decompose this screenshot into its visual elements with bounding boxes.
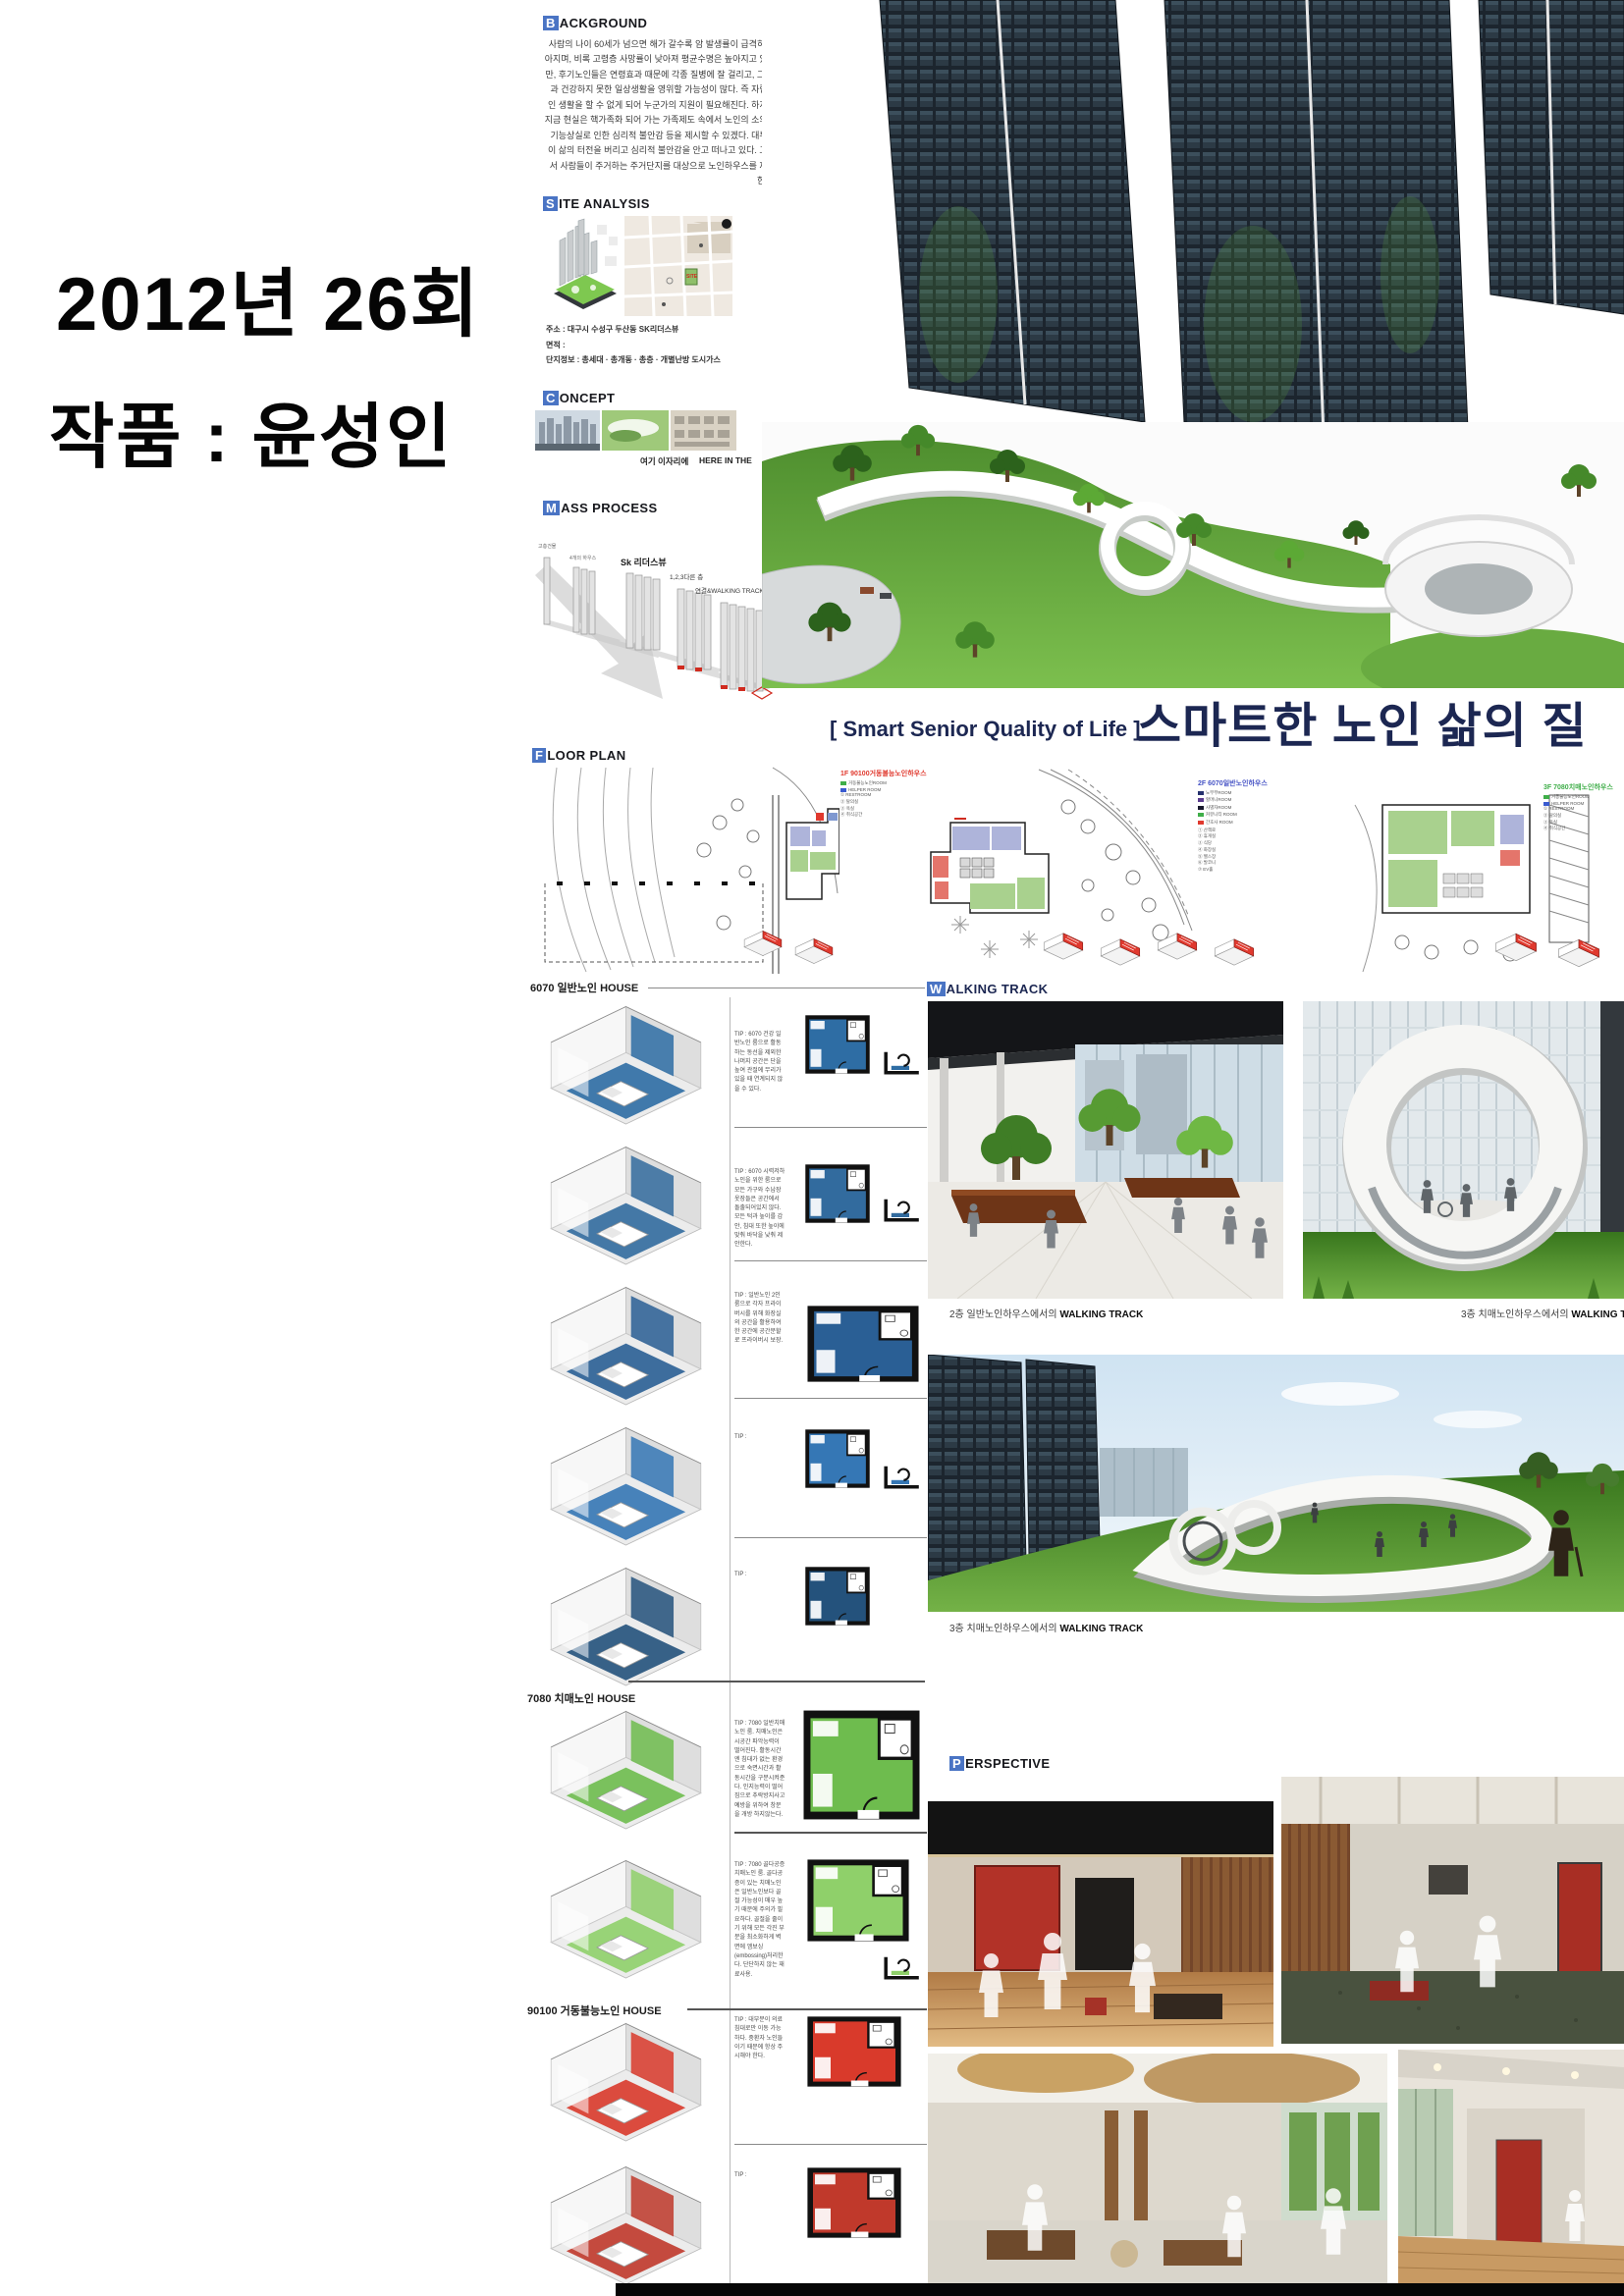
unit-section-icon [882, 1953, 923, 1983]
unit-thumbnails-3 [1492, 925, 1620, 974]
site-complex-info: 단지정보 : 총세대 · 총개동 · 총층 · 개별난방 도시가스 [546, 354, 721, 365]
unit-tip: TIP : 6070 건강 일반노인 룸으로 활동하는 동선을 제외한 나머지 … [734, 1031, 785, 1095]
unit-tip: TIP : 일반노인 2인 룸으로 각자 프라이버시를 위해 화장실의 공간을 … [734, 1292, 785, 1347]
hero-render [762, 0, 1624, 688]
floor-plan-3f-legend: 3F 7080치매노인하우스 거동불능노인ROOM HELPER ROOM ① … [1543, 782, 1622, 832]
unit-axon-model [535, 1857, 717, 1985]
header-initial-box: B [543, 16, 559, 30]
floor-plan-1f-legend: 1F 90100거동불능노인하우스 거동불능노인ROOM HELPER ROOM… [840, 769, 921, 819]
svg-text:고층건물: 고층건물 [538, 543, 557, 550]
unit-axon-model [535, 1708, 717, 1836]
unit-group-header-7080: 7080 치매노인 HOUSE [527, 1690, 635, 1706]
caption-walking-2f: 2층 일반노인하우스에서의 WALKING TRACK [949, 1306, 1143, 1320]
svg-text:SITE: SITE [686, 274, 698, 280]
unit-axon-model [535, 2020, 717, 2148]
unit-plan-diagram [803, 1710, 920, 1820]
subtitle-english: [ Smart Senior Quality of Life ] [830, 717, 1141, 742]
svg-text:Sk 리더스뷰: Sk 리더스뷰 [621, 557, 667, 567]
exhibition-year-title: 2012년 26회 [56, 243, 481, 351]
unit-thumbnails-1 [741, 925, 839, 972]
section-header-walking-track: WALKING TRACK [927, 982, 1048, 996]
caption-walking-3f: 3층 치매노인하우스에서의 WALKING TRACK [949, 1620, 1143, 1634]
unit-axon-model [535, 1565, 717, 1692]
perspective-interior-reddoor-render [1281, 1777, 1624, 2044]
section-header-background: BACKGROUND [543, 16, 647, 30]
unit-plan-diagram [807, 2167, 901, 2238]
main-title-korean: 스마트한 노인 삶의 질 [1137, 687, 1588, 757]
unit-plan-diagram [807, 1306, 919, 1382]
section-header-floor-plan: FLOOR PLAN [532, 748, 626, 763]
site-address: 주소 : 대구시 수성구 두산동 SK리더스뷰 [546, 324, 678, 335]
section-header-mass-process: MASS PROCESS [543, 501, 658, 515]
unit-tip: TIP : 대부분이 의료침대로만 이동 가능하다. 중환자 노인들이기 때문에… [734, 2016, 785, 2061]
unit-plan-diagram [805, 1015, 870, 1074]
perspective-interior-corridor-render [1398, 2050, 1624, 2289]
unit-plan-diagram [807, 1859, 909, 1942]
unit-tip: TIP : [734, 1433, 785, 1442]
floor-plan-2f-legend: 2F 6070일반노인하우스 노부부ROOM 할머니ROOM 사별자ROOM 커… [1198, 778, 1276, 874]
unit-plan-diagram [807, 2016, 901, 2087]
unit-tip: TIP : 6070 시력저하 노인을 위한 룸으로 모든 가구와 수납장 옷장… [734, 1168, 785, 1251]
site-area: 면적 : [546, 340, 566, 350]
svg-text:연결&WALKING TRACK: 연결&WALKING TRACK [695, 586, 764, 595]
section-header-perspective: PERSPECTIVE [949, 1756, 1050, 1771]
unit-axon-model [535, 1003, 717, 1131]
caption-walking-3f-right: 3층 치매노인하우스에서의 WALKING T [1461, 1306, 1624, 1320]
unit-thumbnails-2 [1041, 925, 1267, 974]
site-map-image: SITE [624, 216, 732, 316]
unit-plan-diagram [805, 1429, 870, 1488]
section-header-site-analysis: SITE ANALYSIS [543, 196, 650, 211]
presentation-board: 2012년 26회 작품 : 윤성인 BACKGROUND 사람의 나이 60세… [0, 0, 1624, 2296]
unit-section-icon [882, 1196, 923, 1225]
bottom-bar [616, 2283, 1624, 2296]
perspective-interior-lounge-render [928, 1801, 1273, 2047]
section-header-concept: CONCEPT [543, 391, 615, 405]
svg-text:1,2,3다른 층: 1,2,3다른 층 [670, 572, 703, 581]
unit-axon-model [535, 2163, 717, 2291]
walking-track-tube-render [1303, 1001, 1624, 1299]
unit-group-header-90100: 90100 거동불능노인 HOUSE [527, 2002, 662, 2018]
unit-axon-model [535, 1424, 717, 1552]
mass-process-diagram: 고층건물 4개의 하우스 Sk 리더스뷰 1,2,3다른 층 연결&WALKIN… [530, 518, 781, 703]
concept-caption-en: HERE IN THE [699, 455, 752, 465]
unit-tip: TIP : 7080 일반치매노인 룸. 치매노인은 시공간 파악능력이 떨어진… [734, 1720, 785, 1820]
walking-track-lawn-render [928, 1355, 1624, 1612]
unit-tip: TIP : [734, 1571, 785, 1579]
concept-caption-ko: 여기 이자리에 [640, 455, 688, 467]
unit-axon-model [535, 1144, 717, 1271]
unit-axon-model [535, 1284, 717, 1412]
unit-tip: TIP : [734, 2171, 785, 2180]
background-body-text: 사람의 나이 60세가 넘으면 해가 갈수록 암 발생률이 급격히 높아지며, … [543, 37, 776, 189]
perspective-interior-cafeteria-render [928, 2054, 1387, 2289]
unit-section-icon [882, 1463, 923, 1492]
site-model-image [546, 217, 623, 316]
unit-group-header-6070: 6070 일반노인 HOUSE [530, 980, 638, 995]
unit-section-icon [882, 1048, 923, 1078]
svg-text:4개의 하우스: 4개의 하우스 [569, 555, 597, 561]
walking-track-courtyard-render [928, 1001, 1283, 1299]
unit-plan-diagram [805, 1164, 870, 1223]
unit-plan-diagram [805, 1567, 870, 1626]
concept-image-strip [535, 410, 736, 451]
artist-title: 작품 : 윤성인 [49, 379, 453, 482]
unit-tip: TIP : 7080 골다공증 치매노인 룸. 골다공증이 있는 치매노인은 일… [734, 1861, 785, 1980]
